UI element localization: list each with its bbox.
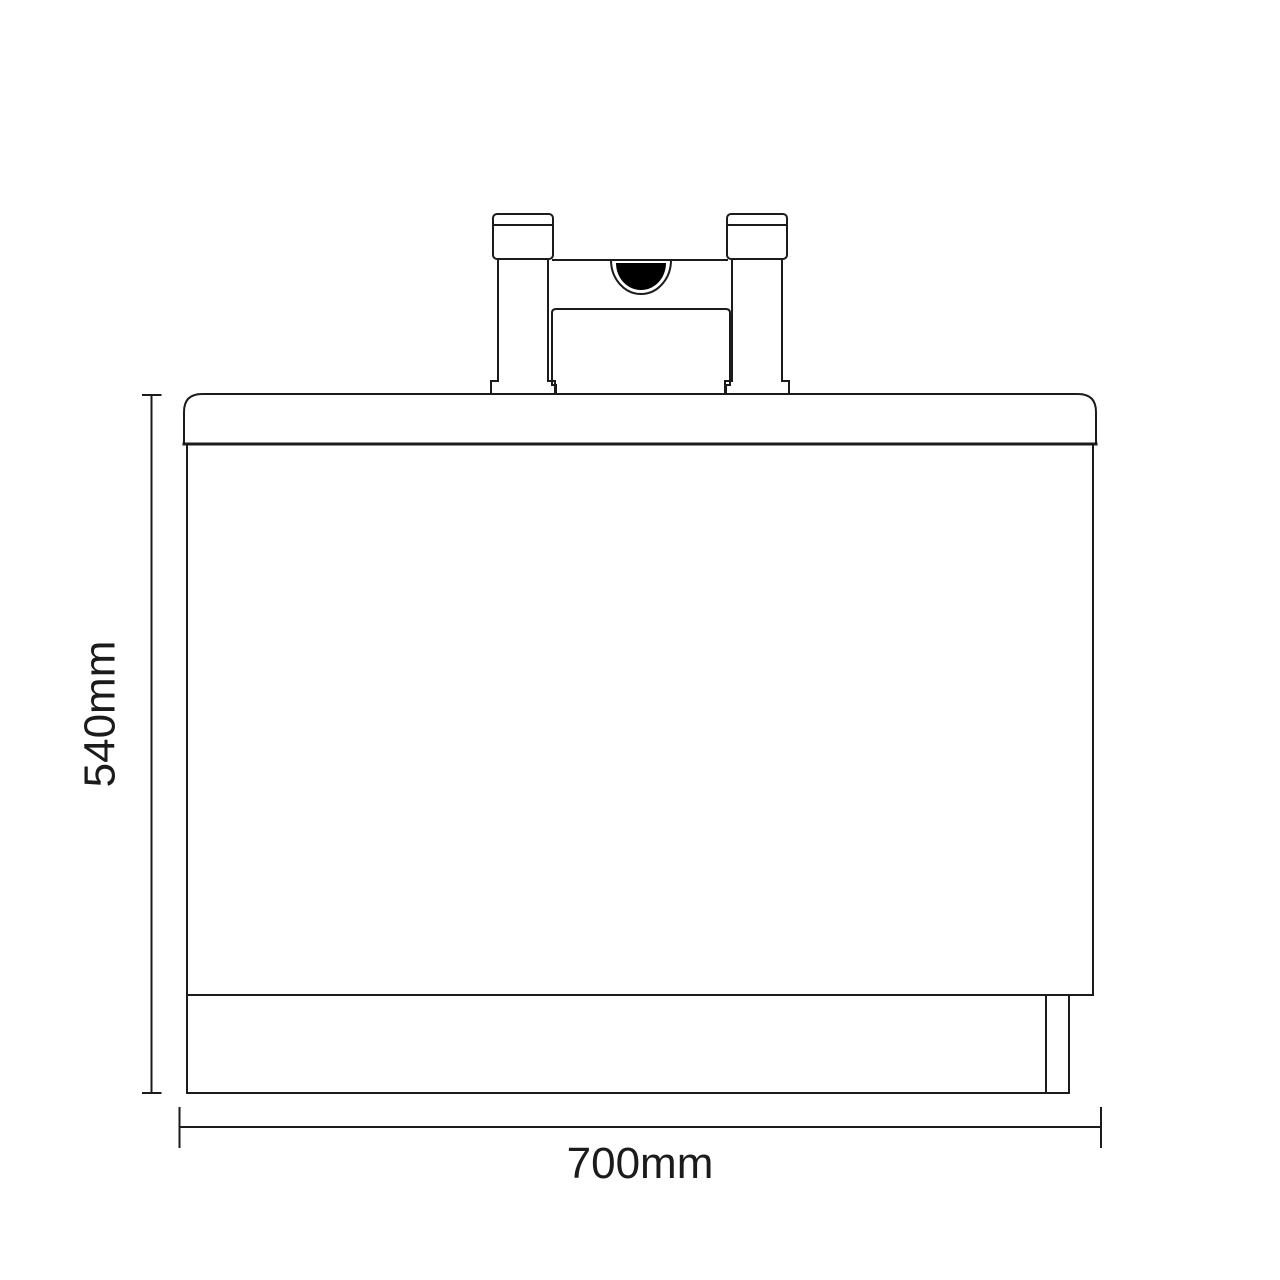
tap-valve-body: [552, 309, 730, 394]
drawing-canvas: 540mm 700mm: [0, 0, 1280, 1280]
bath-panel: [184, 394, 1096, 1093]
tap-spout-opening: [616, 263, 666, 290]
tap-right-pillar: [725, 259, 789, 394]
tap-right-handle-cap: [727, 214, 787, 259]
bath-plinth-panel: [187, 995, 1069, 1093]
line-work: 540mm 700mm: [76, 214, 1101, 1188]
bath-panel-technical-drawing: 540mm 700mm: [0, 0, 1280, 1280]
bath-rim: [184, 394, 1096, 444]
height-dimension-label: 540mm: [76, 641, 125, 788]
bath-filler-tap: [491, 214, 789, 394]
bath-front-panel: [187, 444, 1093, 995]
tap-left-handle-cap: [493, 214, 553, 259]
dimension-annotations: 540mm 700mm: [76, 395, 1101, 1188]
tap-left-pillar: [491, 259, 555, 394]
width-dimension-label: 700mm: [567, 1139, 714, 1188]
